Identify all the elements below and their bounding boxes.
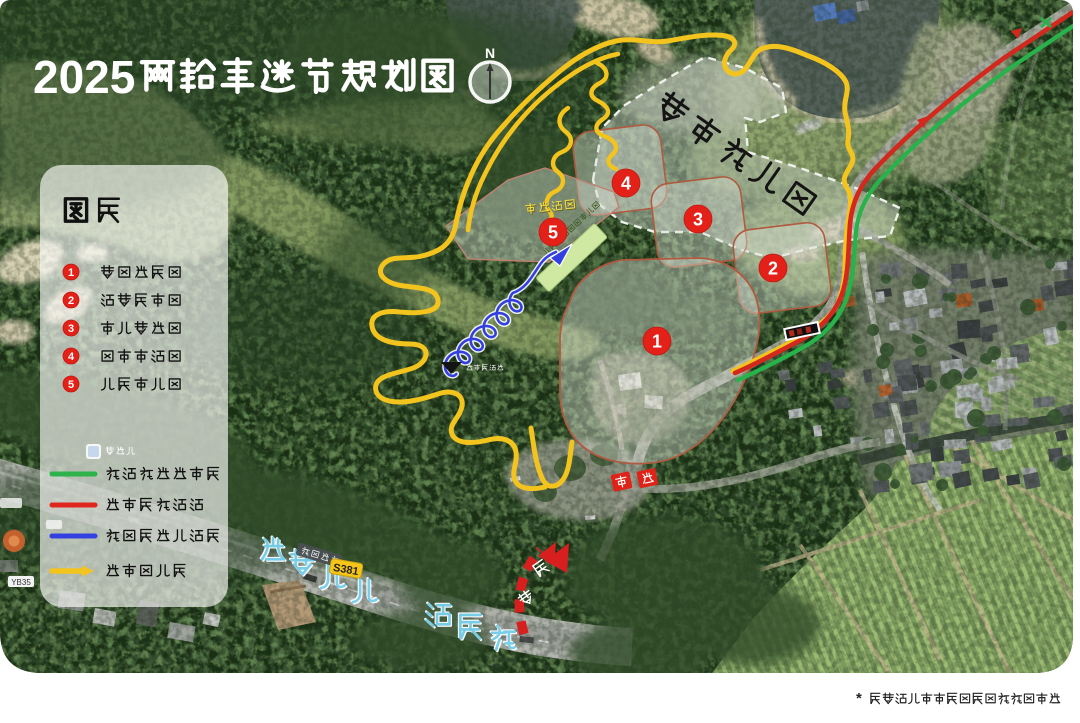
svg-text:3: 3 xyxy=(68,323,74,335)
svg-text:1: 1 xyxy=(68,267,74,279)
svg-text:*: * xyxy=(856,690,862,707)
svg-text:2: 2 xyxy=(768,258,778,278)
svg-text:5: 5 xyxy=(68,379,74,391)
svg-text:N: N xyxy=(485,45,495,61)
svg-text:1: 1 xyxy=(652,331,662,351)
svg-text:3: 3 xyxy=(693,209,703,229)
svg-text:5: 5 xyxy=(548,222,558,242)
svg-text:2: 2 xyxy=(68,295,74,307)
svg-text:4: 4 xyxy=(621,173,631,193)
svg-text:YB35: YB35 xyxy=(11,578,31,587)
svg-text:4: 4 xyxy=(68,351,75,363)
svg-text:2025: 2025 xyxy=(33,51,135,103)
